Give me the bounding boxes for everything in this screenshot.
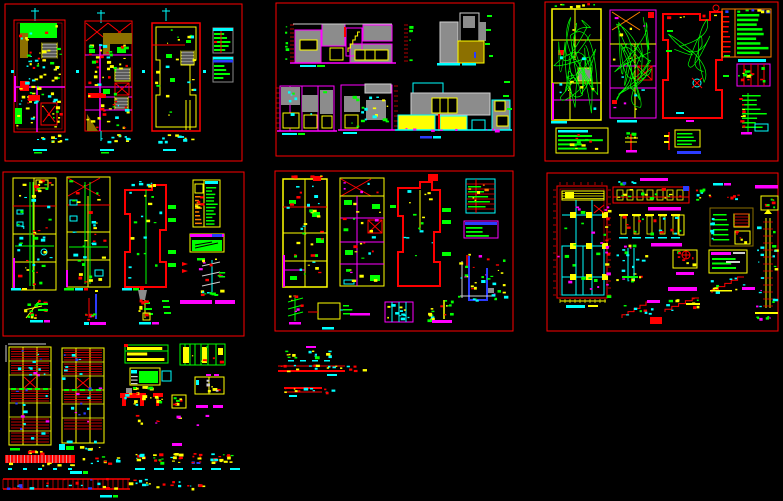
plan-title-1 [551,121,567,124]
gfx-rect [626,150,637,153]
gfx-rect [442,220,451,224]
gfx-rect [213,60,233,63]
gfx-rect [300,40,317,50]
gfx-rect [317,65,325,67]
gfx-rect [640,178,668,181]
gfx-rect [289,322,301,325]
stair-details-title [668,287,697,291]
gfx-rect [206,374,211,376]
gfx-rect [489,55,493,57]
gfx-rect [83,471,88,474]
gfx-rect [495,101,505,111]
gfx-rect [131,370,137,374]
elevation-title-1 [300,65,316,67]
gfx-rect [648,12,654,18]
elevation-2 [440,22,458,63]
gfx-rect [398,115,435,130]
gfx-rect [89,49,95,53]
gfx-rect [711,252,731,255]
gfx-rect [205,181,218,184]
gfx-rect [203,70,206,73]
gfx-rect [144,308,152,310]
elevation-title-3 [282,133,297,135]
plan-title-2 [100,149,114,151]
gfx-rect [664,141,669,143]
gfx-rrect [570,274,608,280]
gfx-rect [22,288,27,291]
gfx-rect [741,132,752,135]
gfx-rect [433,136,441,139]
gfx-rect [507,108,512,110]
gfx-rect [588,305,598,307]
gfx-rect [320,90,333,114]
beam-elevation-title [100,495,112,498]
gfx-rect [713,183,723,186]
gfx-rect [344,200,352,205]
gfx-rect [70,471,82,474]
gfx-rect [666,50,672,52]
gfx-rect [142,70,145,73]
gfx-rect [345,115,358,128]
gfx-rect [36,303,48,305]
cad-model-space[interactable] [0,0,783,501]
gfx-rect [327,374,337,376]
gfx-rect [120,393,146,398]
gfx-rect [432,320,452,323]
gfx-rect [438,114,440,131]
legend-caption [738,59,766,62]
gfx-rect [565,192,574,198]
gfx-rect [95,290,98,292]
plan-title-3 [163,149,176,151]
gfx-rect [474,52,476,58]
gfx-rect [350,313,370,316]
gfx-rect [724,183,731,186]
gfx-rect [164,312,171,314]
gfx-rect [34,152,42,154]
gfx-rect [686,303,700,305]
gfx-rect [30,320,43,323]
gfx-rect [183,347,189,363]
gfx-rect [322,24,345,46]
gfx-rect [647,300,660,303]
elevation-title-2 [437,63,460,66]
gfx-rect [755,312,778,314]
gfx-rect [345,250,353,255]
gfx-rect [304,115,317,128]
gfx-rect [487,15,492,17]
gfx-rect [677,151,701,154]
gfx-rect [472,120,485,130]
gfx-rect [186,40,191,43]
foundation-title [566,305,585,308]
gfx-rect [103,33,110,55]
gfx-rect [390,205,396,208]
gfx-rect [463,16,475,28]
gfx-rect [440,116,467,130]
gfx-rect [218,348,223,355]
gfx-rect [306,346,316,348]
gfx-rect [442,252,451,256]
gfx-rect [458,41,484,63]
gfx-rect [488,288,494,293]
gfx-rect [213,57,233,60]
gfx-rect [66,446,74,450]
gfx-rect [113,495,118,498]
gfx-rect [214,41,217,43]
gfx-rect [75,288,83,291]
gfx-rect [152,322,159,325]
gfx-rect [479,22,486,41]
gfx-rect [651,243,682,247]
gfx-rect [664,135,669,137]
gfx-rect [139,371,158,383]
gfx-rect [612,100,617,104]
gfx-rect [44,320,50,323]
gfx-rect [172,443,182,446]
gfx-rect [103,89,110,94]
gfx-rect [462,63,476,66]
gfx-rect [196,380,199,385]
beam-elevation-1 [5,455,75,463]
gfx-rect [676,112,684,114]
gfx-rect [289,395,297,397]
gfx-rect [196,405,208,408]
plan-title-2 [64,288,74,291]
gfx-rect [302,95,318,112]
gfx-rect [168,250,176,254]
gfx-rect [163,306,170,308]
gfx-rect [28,95,40,101]
gfx-rect [101,152,109,154]
gfx-rect [365,84,391,93]
gfx-rect [11,70,14,73]
gfx-rrect [570,243,608,249]
gfx-rect [214,374,219,376]
gfx-rect [290,276,297,280]
gfx-rect [486,29,491,31]
portal-frame-detail [126,388,132,393]
gfx-rrect [570,212,608,218]
gfx-rect [428,174,438,181]
elevation-title-5 [420,136,432,139]
gfx-rect [503,95,509,97]
gfx-rect [115,68,130,81]
gfx-rect [622,276,638,278]
plan-title-1 [33,149,47,151]
gfx-rect [168,263,176,267]
gfx-rect [322,327,334,330]
plan-title-1 [11,288,21,291]
plan-title-3 [122,288,132,291]
gfx-rect [372,204,380,209]
gfx-rect [162,300,169,302]
gfx-rect [298,133,305,135]
plan-title-2 [617,120,637,123]
gfx-rect [683,186,689,191]
gfx-rect [465,222,497,225]
gfx-rect [686,120,694,122]
gfx-rect [166,54,172,58]
gfx-rect [139,322,151,325]
gfx-rect [170,78,175,82]
riser-caption [180,300,212,304]
gfx-rect [710,290,732,292]
gfx-rect [485,43,490,45]
gfx-rect [59,444,65,450]
gfx-rect [344,27,346,37]
gfx-rect [38,309,48,311]
gfx-rect [168,218,176,222]
gfx-rect [504,81,510,83]
gfx-rect [650,317,662,324]
elevation-title-4 [343,132,357,134]
gfx-rect [124,344,128,347]
gfx-rect [215,300,235,304]
gfx-rect [90,322,106,325]
gfx-rect [213,28,233,31]
gfx-rect [442,208,451,212]
gfx-rect [497,116,508,126]
gfx-rect [676,272,694,275]
gfx-rect [723,75,729,77]
gfx-rect [330,48,343,60]
gfx-rect [667,30,673,32]
gfx-rect [213,405,223,408]
gfx-rect [363,25,392,41]
gfx-rect [84,322,89,325]
gfx-rect [212,234,222,237]
gfx-rect [726,261,740,263]
gfx-rect [733,252,745,254]
gfx-rect [558,130,588,133]
gfx-rect [355,50,388,60]
gfx-rect [76,70,79,73]
gfx-rect [84,288,88,291]
gfx-rect [10,448,20,451]
gfx-rect [432,98,457,113]
gfx-rect [742,287,755,290]
gfx-rect [344,96,360,112]
column-details-title [648,207,681,211]
gfx-rect [168,205,176,209]
gfx-rect [322,116,332,128]
gfx-rect [755,185,778,189]
drawing-svg [0,0,783,501]
